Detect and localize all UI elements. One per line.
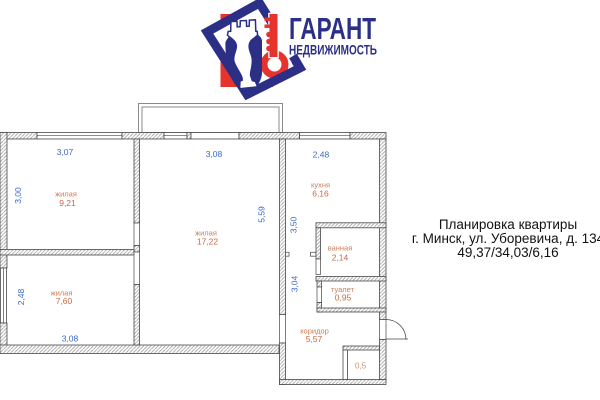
svg-text:5,59: 5,59 — [257, 206, 267, 223]
svg-text:0,95: 0,95 — [335, 293, 352, 303]
svg-text:3,08: 3,08 — [206, 149, 223, 159]
svg-text:3,08: 3,08 — [62, 334, 79, 344]
svg-text:НЕДВИЖИМОСТЬ: НЕДВИЖИМОСТЬ — [289, 43, 377, 58]
svg-text:3,00: 3,00 — [13, 187, 23, 204]
svg-text:Планировка квартиры: Планировка квартиры — [439, 217, 577, 232]
svg-text:ванная: ванная — [328, 244, 353, 253]
svg-text:49,37/34,03/6,16: 49,37/34,03/6,16 — [457, 245, 558, 260]
svg-text:3,04: 3,04 — [290, 275, 300, 292]
svg-text:5,57: 5,57 — [306, 334, 323, 344]
svg-text:6,16: 6,16 — [312, 189, 329, 199]
svg-text:ГАРАНТ: ГАРАНТ — [289, 11, 376, 46]
svg-text:9,21: 9,21 — [59, 198, 76, 208]
svg-text:2,48: 2,48 — [313, 150, 330, 160]
svg-text:3,07: 3,07 — [57, 147, 74, 157]
svg-text:17,22: 17,22 — [197, 237, 219, 247]
svg-text:2,14: 2,14 — [332, 253, 349, 263]
svg-text:2,48: 2,48 — [16, 288, 26, 305]
svg-text:г. Минск, ул. Уборевича, д. 13: г. Минск, ул. Уборевича, д. 134 — [412, 231, 600, 246]
svg-text:7,60: 7,60 — [56, 296, 73, 306]
svg-text:0,5: 0,5 — [355, 362, 367, 371]
svg-text:3,50: 3,50 — [289, 216, 299, 233]
